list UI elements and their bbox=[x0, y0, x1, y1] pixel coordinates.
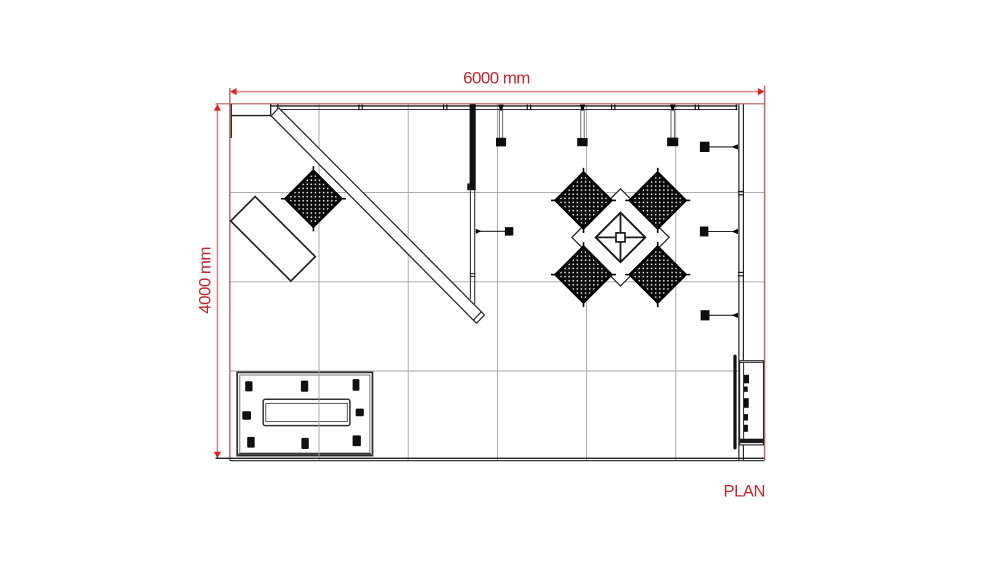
svg-text:6000 mm: 6000 mm bbox=[463, 68, 530, 87]
svg-text:PLAN: PLAN bbox=[724, 483, 766, 501]
svg-text:4000 mm: 4000 mm bbox=[196, 247, 215, 314]
